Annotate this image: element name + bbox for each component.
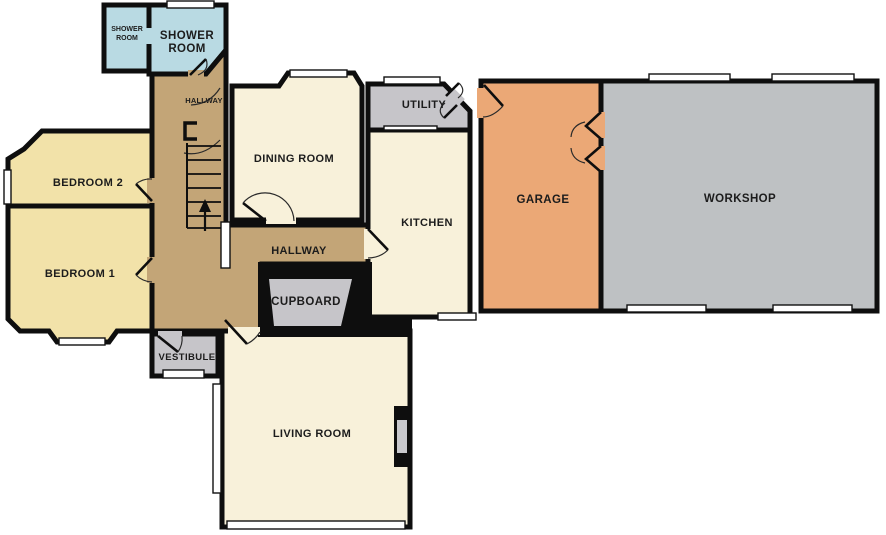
shower-room-large-label-line2: ROOM	[168, 43, 205, 55]
garage-label: GARAGE	[517, 194, 570, 206]
workshop-label: WORKSHOP	[704, 193, 776, 205]
bedroom-1-label: BEDROOM 1	[45, 268, 115, 280]
door-opening	[477, 88, 485, 118]
glazed-screen-hallway	[221, 222, 230, 268]
window-workshop-bottom-2	[773, 305, 852, 312]
vestibule-label: VESTIBULE	[159, 352, 216, 363]
floor-plan: SHOWER ROOM SHOWER ROOM HALLWAY BEDROOM …	[0, 0, 886, 535]
room-bedroom-2	[8, 131, 152, 206]
bedroom-2-label: BEDROOM 2	[53, 177, 123, 189]
door-opening	[266, 216, 296, 224]
cupboard-label: CUPBOARD	[271, 296, 341, 308]
window-kitchen-bottom	[438, 313, 476, 320]
room-dining-room	[232, 73, 362, 220]
window-dining-bay	[290, 70, 347, 77]
window-living-room-bottom	[227, 521, 405, 529]
dining-room-label: DINING ROOM	[254, 153, 334, 165]
window-living-room-left	[213, 384, 221, 493]
window-bedroom-1-bay	[59, 338, 105, 345]
kitchen-label: KITCHEN	[401, 217, 453, 229]
fireplace	[394, 406, 411, 467]
window-workshop-top-1	[649, 74, 730, 81]
hallway-label: HALLWAY	[271, 245, 327, 257]
shower-room-small-label-line2: ROOM	[116, 35, 138, 42]
hatch-utility-kitchen	[384, 126, 437, 130]
window-shower-room-top	[167, 1, 214, 8]
window-workshop-bottom-1	[627, 305, 706, 312]
fireplace-opening	[397, 420, 407, 453]
floor-plan-canvas: SHOWER ROOM SHOWER ROOM HALLWAY BEDROOM …	[0, 0, 886, 535]
front-door-vestibule	[163, 370, 204, 378]
utility-label: UTILITY	[402, 99, 447, 111]
shower-divider-opening	[146, 28, 153, 44]
living-room-label: LIVING ROOM	[273, 428, 351, 440]
hallway-upper-label: HALLWAY	[185, 96, 222, 105]
shower-room-small-label-line1: SHOWER	[111, 26, 143, 33]
shower-room-large-label-line1: SHOWER	[160, 30, 214, 42]
window-bedroom-2-left	[4, 170, 11, 204]
window-workshop-top-2	[772, 74, 854, 81]
door-opening	[158, 331, 182, 338]
window-utility-top	[384, 77, 440, 84]
